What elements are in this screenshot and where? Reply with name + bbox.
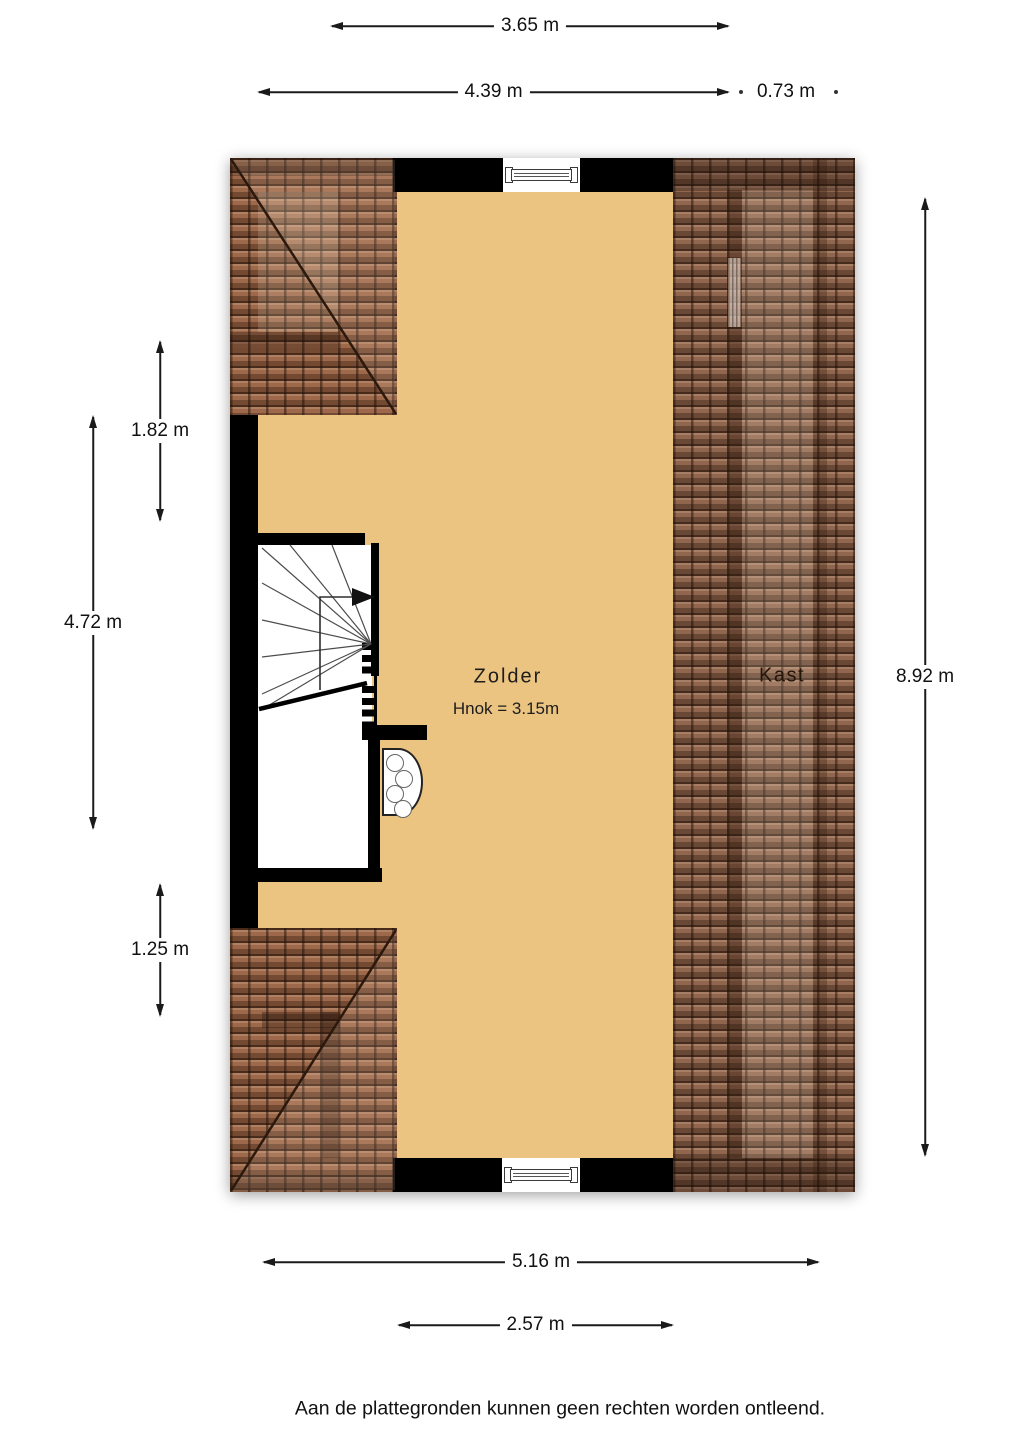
room-label-kast: Kast <box>759 665 805 688</box>
dimension-bottom-inner: 2.57 m <box>397 1318 674 1332</box>
roof-left-bottom-eave-shadow <box>230 1175 397 1192</box>
arrowhead-left-icon <box>257 88 270 96</box>
window-top <box>503 158 580 192</box>
stairwell-bottom-wall <box>258 868 382 882</box>
dimension-label: 1.25 m <box>124 938 196 962</box>
dimension-label: 8.92 m <box>889 665 961 689</box>
stairs-top-wall <box>258 533 365 545</box>
dimension-label-top-right: 0.73 m <box>757 81 815 103</box>
bottom-wall-right-segment <box>580 1158 673 1192</box>
arrowhead-up-icon <box>921 197 929 210</box>
window-top-frame <box>511 169 572 181</box>
tick-dot <box>834 90 838 94</box>
dimension-label: 4.72 m <box>57 611 129 635</box>
dimension-label: 2.57 m <box>499 1313 571 1337</box>
roof-right-eave-shadow <box>673 1158 855 1192</box>
roof-right-ridge-shadow <box>673 158 855 191</box>
dimension-right-full: 8.92 m <box>918 197 932 1157</box>
stairs-right-edge-line <box>374 676 377 730</box>
arrowhead-up-icon <box>89 415 97 428</box>
stairwell-stub-wall <box>362 725 427 740</box>
radiator-hint <box>728 258 741 327</box>
arrowhead-right-icon <box>717 22 730 30</box>
arrowhead-left-icon <box>330 22 343 30</box>
disclaimer-text: Aan de plattegronden kunnen geen rechten… <box>295 1398 825 1421</box>
staircase-area <box>258 545 372 868</box>
window-bottom-glass-line <box>513 1173 569 1174</box>
top-wall-left-segment <box>393 158 503 192</box>
roof-right-seam <box>813 158 827 1192</box>
bottom-wall-left-segment <box>393 1158 502 1192</box>
arrowhead-down-icon <box>921 1144 929 1157</box>
dimension-top-left: 4.39 m <box>257 85 730 99</box>
dimension-label: 5.16 m <box>505 1250 577 1274</box>
arrowhead-right-icon <box>717 88 730 96</box>
roof-left-bottom-wall-hint-vertical <box>322 1012 338 1158</box>
window-top-glass-line <box>514 176 569 177</box>
top-wall-right-segment <box>580 158 673 192</box>
dimension-left-middle: 4.72 m <box>86 415 100 830</box>
arrowhead-left-icon <box>397 1321 410 1329</box>
arrowhead-down-icon <box>89 817 97 830</box>
dimension-left-lower: 1.25 m <box>153 883 167 1017</box>
window-top-glass-line <box>514 173 569 174</box>
room-label-zolder-height: Hnok = 3.15m <box>453 699 559 719</box>
stair-teeth-lower <box>362 686 374 726</box>
arrowhead-up-icon <box>156 340 164 353</box>
dimension-left-upper: 1.82 m <box>153 340 167 522</box>
roof-left-top-room-hint <box>258 192 338 332</box>
window-bottom-glass-line <box>513 1176 569 1177</box>
arrowhead-down-icon <box>156 1004 164 1017</box>
roof-left-bottom <box>230 928 397 1192</box>
dimension-top-inner: 3.65 m <box>330 19 730 33</box>
arrowhead-down-icon <box>156 509 164 522</box>
dimension-label: 1.82 m <box>124 419 196 443</box>
tick-dot <box>739 90 743 94</box>
roof-left-top-wall-hint <box>230 332 338 348</box>
arrowhead-right-icon <box>661 1321 674 1329</box>
window-bottom-frame <box>510 1169 572 1181</box>
arrowhead-up-icon <box>156 883 164 896</box>
window-bottom <box>502 1158 580 1192</box>
roof-left-top-ridge-shadow <box>230 158 397 176</box>
arrowhead-right-icon <box>807 1258 820 1266</box>
dimension-label: 4.39 m <box>457 80 529 104</box>
arrowhead-left-icon <box>262 1258 275 1266</box>
stairwell-right-wall <box>368 740 380 882</box>
dimension-label: 3.65 m <box>494 14 566 38</box>
dimension-bottom-full: 5.16 m <box>262 1255 820 1269</box>
floorplan-page: 3.65 m 4.39 m 0.73 m 1.82 m 4.72 m 1.25 … <box>0 0 1018 1440</box>
kast-wall-hint <box>727 190 742 1158</box>
boiler-dial <box>394 800 412 818</box>
stair-teeth-upper <box>362 643 374 676</box>
room-label-zolder: Zolder <box>474 666 543 689</box>
left-wall <box>230 415 258 928</box>
